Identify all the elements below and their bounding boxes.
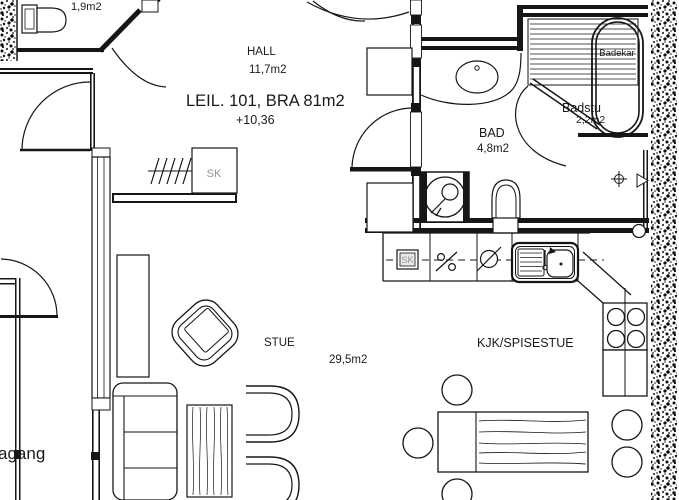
exterior-wall-right: [651, 0, 677, 500]
sauna-area-label: 2,2m2: [576, 114, 605, 126]
floor-drain-icon: [611, 171, 627, 187]
bath-toilet: [492, 180, 520, 233]
slope-triangle-icon: [637, 174, 648, 187]
door-corridor-entrance: [0, 259, 58, 318]
hall-name-label: HALL: [247, 46, 276, 58]
dishwasher-symbol: [436, 252, 457, 271]
hall-area-label: 11,7m2: [249, 64, 287, 76]
bath-name-label: BAD: [479, 126, 505, 140]
hall-cabinet-lower: [367, 183, 413, 232]
door-corridor-upper: [20, 82, 90, 150]
easy-chair-upper: [246, 386, 299, 442]
door-entry-top: [307, 1, 409, 21]
exterior-wall-top-left: [0, 0, 17, 61]
dining-table: [438, 412, 588, 472]
washbasin: [421, 53, 521, 104]
kitchen-counter: [383, 233, 631, 303]
bathtub-label: Badekar: [599, 48, 634, 59]
coffee-table: [187, 405, 232, 497]
unit-title-label: LEIL. 101, BRA 81m2: [186, 92, 345, 110]
sofa: [113, 383, 177, 500]
kitchen-sink: [512, 243, 578, 282]
hall-cabinet-upper: [367, 48, 412, 95]
pipe-shaft: [633, 225, 646, 238]
floorplan-drawing: 1,9m2 HALL 11,7m2 LEIL. 101, BRA 81m2 +1…: [0, 0, 679, 500]
washing-machine: [421, 172, 469, 222]
door-bath: [350, 108, 413, 172]
kitchen-name-label: KJK/SPISESTUE: [477, 336, 574, 350]
wc-area-label: 1,9m2: [71, 1, 102, 13]
bath-area-label: 4,8m2: [477, 143, 509, 155]
stue-name-label: STUE: [264, 337, 295, 349]
armchair: [165, 293, 244, 372]
door-wc: [112, 48, 166, 87]
hall-wardrobe-sk-label: SK: [207, 168, 222, 180]
floorplan-canvas: 1,9m2 HALL 11,7m2 LEIL. 101, BRA 81m2 +1…: [0, 0, 679, 500]
coat-hooks: [148, 158, 192, 184]
cooktop-symbol: [477, 247, 501, 271]
stue-area-label: 29,5m2: [329, 354, 367, 366]
sideboard: [117, 255, 149, 377]
stove: [603, 288, 647, 396]
wc-toilet: [22, 5, 66, 33]
sauna-name-label: Badstu: [562, 101, 601, 115]
kitchen-cabinet-sk-label: SK: [401, 255, 413, 265]
corridor-name-label: agang: [0, 444, 45, 463]
elevation-label: +10,36: [236, 113, 275, 127]
easy-chair-lower: [246, 457, 299, 500]
